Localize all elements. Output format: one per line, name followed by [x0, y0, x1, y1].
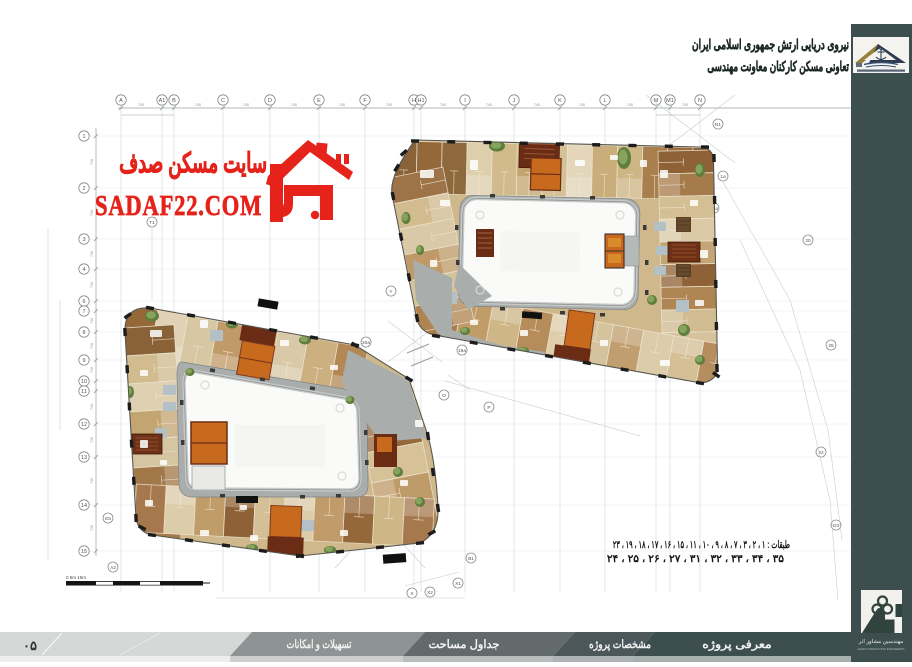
svg-text:E5: E5: [105, 516, 111, 522]
svg-text:740: 740: [339, 103, 345, 107]
svg-text:نیروی دریایی ارتش جمهوری اسلام: نیروی دریایی ارتش جمهوری اسلامی ایران: [692, 38, 849, 52]
svg-text:مشخصات پروژه: مشخصات پروژه: [589, 639, 651, 651]
svg-text:740: 740: [90, 343, 94, 349]
svg-text:9: 9: [82, 358, 85, 364]
svg-text:740: 740: [291, 103, 297, 107]
svg-text:740: 740: [682, 103, 688, 107]
svg-text:740: 740: [90, 282, 94, 288]
svg-text:O: O: [442, 393, 446, 399]
svg-text:7: 7: [82, 309, 85, 315]
svg-text:740: 740: [90, 437, 94, 443]
svg-text:1a: 1a: [720, 174, 726, 180]
svg-text:740: 740: [579, 103, 585, 107]
svg-text:C: C: [221, 98, 225, 104]
svg-text:4: 4: [82, 267, 85, 273]
svg-text:K: K: [558, 98, 562, 104]
svg-text:A: A: [119, 98, 123, 104]
svg-text:740: 740: [386, 103, 392, 107]
svg-text:740: 740: [90, 251, 94, 257]
svg-text:۲۴ ، ۲۵ ، ۲۶ ، ۲۷ ، ۳۱ ، ۳۲ ،: ۲۴ ، ۲۵ ، ۲۶ ، ۲۷ ، ۳۱ ، ۳۲ ، ۳۳ ، ۳۴ ، …: [607, 553, 784, 565]
svg-text:D: D: [268, 98, 272, 104]
svg-text:740: 740: [90, 367, 94, 373]
svg-text:N: N: [698, 98, 702, 104]
svg-text:14: 14: [81, 503, 87, 509]
svg-text:3: 3: [82, 237, 85, 243]
svg-text:8: 8: [82, 330, 85, 336]
svg-text:E: E: [317, 98, 321, 104]
svg-text:740: 740: [486, 103, 492, 107]
svg-text:A2: A2: [110, 565, 116, 571]
svg-text:جداول مساحت: جداول مساحت: [428, 639, 499, 651]
svg-text:H: H: [412, 98, 416, 104]
svg-text:740: 740: [90, 210, 94, 216]
svg-text:12: 12: [81, 422, 87, 428]
svg-text:2: 2: [82, 186, 85, 192]
svg-text:A1: A1: [159, 98, 166, 104]
svg-text:20: 20: [805, 238, 811, 244]
svg-text:740: 740: [243, 103, 249, 107]
svg-text:6: 6: [82, 299, 85, 305]
svg-text:19a: 19a: [458, 348, 466, 354]
svg-text:مهندسین مشاور اثر: مهندسین مشاور اثر: [858, 638, 904, 645]
svg-text:SADAF22.COM: SADAF22.COM: [95, 191, 262, 222]
svg-text:۰۵: ۰۵: [23, 638, 37, 653]
svg-text:740: 740: [195, 103, 201, 107]
svg-text:1: 1: [82, 134, 85, 140]
svg-text:25: 25: [828, 343, 834, 349]
svg-text:تسهیلات و امکانات: تسهیلات و امکانات: [287, 639, 352, 652]
svg-text:X2: X2: [427, 590, 433, 596]
svg-text:740: 740: [534, 103, 540, 107]
svg-text:O3: O3: [833, 523, 840, 529]
svg-text:B: B: [172, 98, 176, 104]
svg-text:طبقات : ۱ ، ۲ ، ۳ ، ۷ ، ۸ ، ۹: طبقات : ۱ ، ۲ ، ۳ ، ۷ ، ۸ ، ۹ ، ۱۰ ، ۱۱ …: [613, 538, 790, 550]
svg-text:تعاونی مسکن کارکنان معاونت مهن: تعاونی مسکن کارکنان معاونت مهندسی: [707, 60, 849, 74]
svg-text:B1: B1: [468, 556, 474, 562]
svg-text:0 5m 15m: 0 5m 15m: [66, 575, 86, 580]
svg-text:معرفی پروژه: معرفی پروژه: [702, 638, 771, 652]
svg-text:740: 740: [90, 404, 94, 410]
svg-text:H1: H1: [417, 98, 424, 104]
svg-text:740: 740: [440, 103, 446, 107]
svg-text:740: 740: [90, 159, 94, 165]
svg-text:15: 15: [81, 549, 87, 555]
svg-text:740: 740: [90, 318, 94, 324]
svg-text:J: J: [513, 98, 516, 104]
svg-text:740: 740: [627, 103, 633, 107]
svg-text:740: 740: [90, 525, 94, 531]
svg-text:11: 11: [81, 389, 87, 395]
svg-text:13: 13: [81, 455, 87, 461]
svg-text:سایت مسکن صدف: سایت مسکن صدف: [119, 147, 267, 180]
svg-text:L: L: [603, 98, 606, 104]
svg-text:P: P: [487, 405, 490, 411]
svg-text:N1: N1: [715, 122, 721, 128]
svg-text:10: 10: [81, 379, 87, 385]
svg-text:ASAR CONSULTING ENGINEERS: ASAR CONSULTING ENGINEERS: [858, 647, 905, 651]
svg-text:X1: X1: [455, 581, 461, 587]
svg-text:740: 740: [90, 478, 94, 484]
svg-text:M1: M1: [666, 98, 674, 104]
svg-text:20a: 20a: [362, 340, 370, 346]
svg-text:740: 740: [138, 103, 144, 107]
